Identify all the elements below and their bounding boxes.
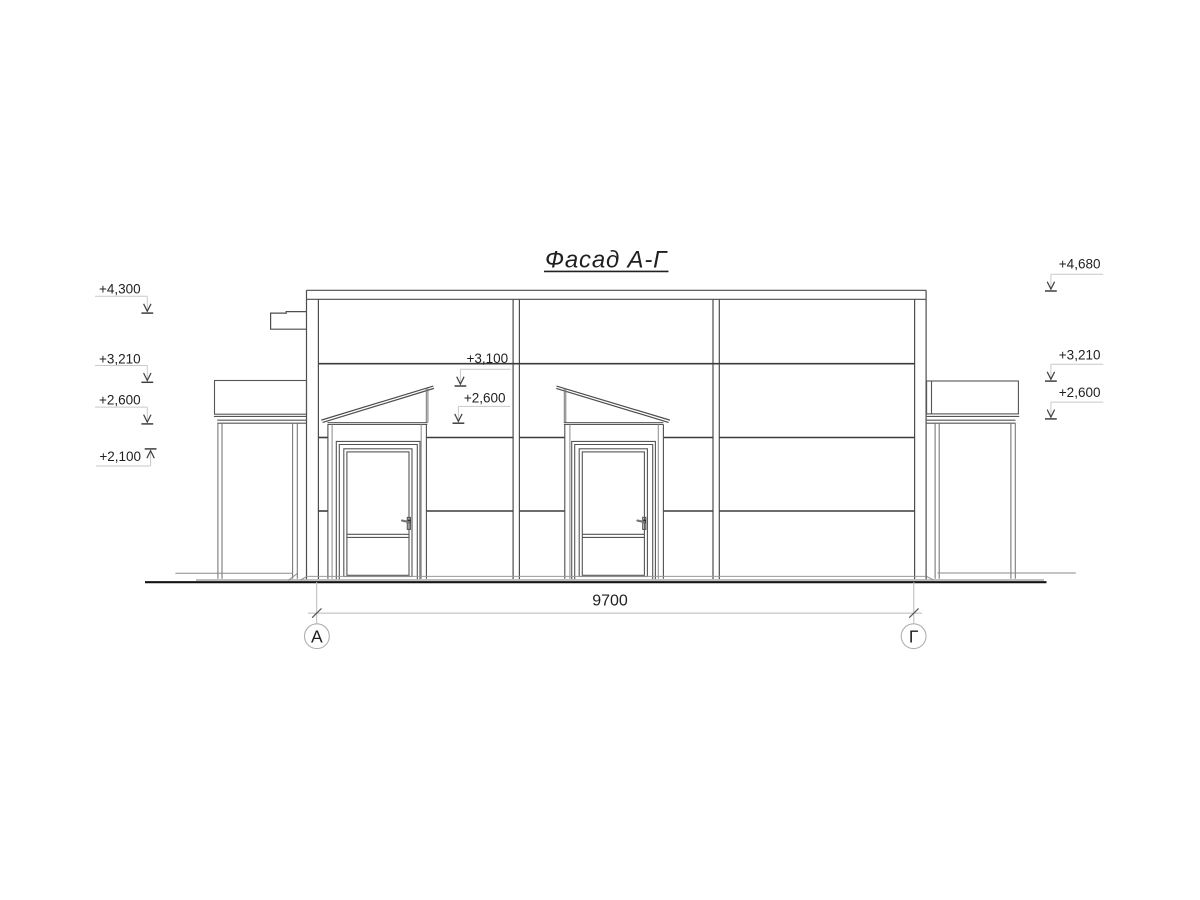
svg-text:+2,100: +2,100	[99, 449, 141, 464]
svg-text:9700: 9700	[592, 592, 628, 609]
svg-text:+3,210: +3,210	[1059, 348, 1101, 363]
svg-text:+4,300: +4,300	[99, 282, 141, 297]
svg-text:А: А	[311, 627, 323, 647]
svg-text:+2,600: +2,600	[99, 392, 141, 407]
svg-text:+3,100: +3,100	[467, 351, 509, 366]
svg-text:+2,600: +2,600	[464, 390, 506, 405]
svg-text:+4,680: +4,680	[1059, 256, 1101, 271]
svg-text:Фасад А-Г: Фасад А-Г	[545, 246, 668, 273]
svg-text:+2,600: +2,600	[1059, 385, 1101, 400]
svg-text:Г: Г	[909, 627, 919, 647]
svg-text:+3,210: +3,210	[99, 351, 141, 366]
